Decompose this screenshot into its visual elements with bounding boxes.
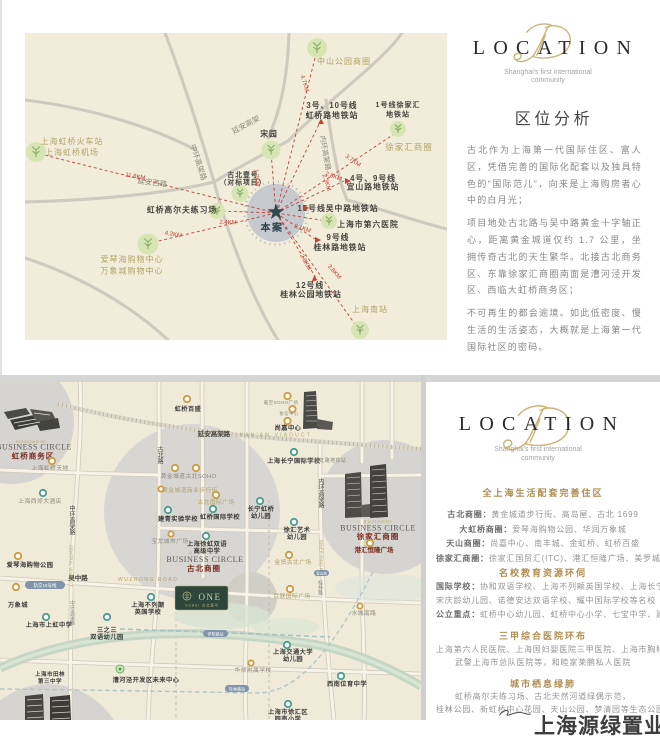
svg-text:CENTRAL VIADUCT: CENTRAL VIADUCT xyxy=(69,545,74,587)
svg-text:宋园: 宋园 xyxy=(259,129,278,139)
svg-text:ONE: ONE xyxy=(199,592,222,602)
svg-text:万象城购物中心: 万象城购物中心 xyxy=(101,266,164,276)
svg-text:INNER RING RD: INNER RING RD xyxy=(319,540,324,575)
svg-text:1号线徐家汇: 1号线徐家汇 xyxy=(376,100,421,109)
svg-text:双语幼儿园: 双语幼儿园 xyxy=(89,633,123,641)
svg-text:上海徐虹双语: 上海徐虹双语 xyxy=(187,540,227,548)
svg-text:幼儿园: 幼儿园 xyxy=(283,655,303,663)
svg-text:尚嘉中心: 尚嘉中心 xyxy=(275,424,302,432)
svg-text:上海市第六医院: 上海市第六医院 xyxy=(337,219,399,229)
svg-text:水城南路: 水城南路 xyxy=(352,609,377,617)
svg-text:本案: 本案 xyxy=(261,221,284,234)
svg-text:上海西郊大酒店: 上海西郊大酒店 xyxy=(18,497,61,505)
svg-text:黄金城道: 黄金城道 xyxy=(161,472,186,480)
svg-text:桂林路站: 桂林路站 xyxy=(229,686,245,692)
svg-text:宝龙城市广场: 宝龙城市广场 xyxy=(151,537,188,545)
svg-text:临空SOHO广场: 临空SOHO广场 xyxy=(264,399,299,406)
svg-text:WUZHONG ROAD: WUZHONG ROAD xyxy=(118,577,178,583)
svg-text:虹桥高尔夫练习场: 虹桥高尔夫练习场 xyxy=(147,205,217,215)
svg-text:中山公园商圈: 中山公园商圈 xyxy=(317,56,371,66)
svg-text:西南位育中学: 西南位育中学 xyxy=(327,680,367,688)
svg-text:虹桥国际学校: 虹桥国际学校 xyxy=(200,513,240,521)
svg-text:建青实验学校: 建青实验学校 xyxy=(157,515,198,523)
svg-text:古北SOHO: 古北SOHO xyxy=(185,472,216,480)
svg-text:9号线: 9号线 xyxy=(327,232,350,242)
svg-text:华师附属学校: 华师附属学校 xyxy=(234,666,271,674)
svg-text:上海虹桥机场: 上海虹桥机场 xyxy=(45,147,99,157)
svg-text:古北路: 古北路 xyxy=(156,445,163,465)
svg-text:万象城: 万象城 xyxy=(7,601,28,609)
svg-text:上海虹桥天地: 上海虹桥天地 xyxy=(31,464,68,472)
svg-text:三之三: 三之三 xyxy=(97,626,117,634)
svg-text:地铁站: 地铁站 xyxy=(386,110,410,119)
svg-text:英国学校: 英国学校 xyxy=(135,608,162,616)
svg-text:上海南站: 上海南站 xyxy=(352,304,388,314)
svg-text:内环高架路: 内环高架路 xyxy=(317,477,324,509)
svg-text:桂林路: 桂林路 xyxy=(317,579,323,596)
svg-text:GUBEI 古北壹号: GUBEI 古北壹号 xyxy=(185,603,219,608)
svg-text:上海市田林: 上海市田林 xyxy=(35,670,65,678)
svg-text:上海虹桥火车站: 上海虹桥火车站 xyxy=(41,136,104,146)
svg-text:伊犁路站: 伊犁路站 xyxy=(208,631,224,637)
svg-text:古北国际广场: 古北国际广场 xyxy=(197,498,234,506)
svg-text:桂林公园地铁站: 桂林公园地铁站 xyxy=(279,289,342,299)
svg-text:漕河泾开发区未来中心: 漕河泾开发区未来中心 xyxy=(112,676,180,684)
svg-text:4号、9号线: 4号、9号线 xyxy=(350,173,396,183)
svg-text:第三中学: 第三中学 xyxy=(38,677,62,685)
svg-text:12号线: 12号线 xyxy=(296,280,324,290)
svg-text:港汇恒隆广场: 港汇恒隆广场 xyxy=(355,545,395,554)
svg-text:长宁区淞虹路地铁站: 长宁区淞虹路地铁站 xyxy=(298,457,347,464)
svg-text:宜山路地铁站: 宜山路地铁站 xyxy=(347,182,400,192)
svg-text:虹桥商务区: 虹桥商务区 xyxy=(12,451,55,461)
svg-text:上海不列颠: 上海不列颠 xyxy=(131,601,165,609)
svg-text:上海市上虹中学: 上海市上虹中学 xyxy=(26,621,73,629)
svg-text:爱琴海购物中心: 爱琴海购物中心 xyxy=(101,254,164,264)
svg-text:百联国际广场: 百联国际广场 xyxy=(273,592,310,600)
svg-text:徐家汇商圈: 徐家汇商圈 xyxy=(385,142,433,152)
svg-text:协信中心: 协信中心 xyxy=(279,410,299,417)
svg-text:宜山站: 宜山站 xyxy=(316,571,327,576)
svg-text:YAN'AN VIADUCT: YAN'AN VIADUCT xyxy=(240,433,312,439)
svg-text:延安高架路: 延安高架路 xyxy=(197,429,231,438)
svg-text:徐家汇商圈: 徐家汇商圈 xyxy=(356,531,400,541)
svg-text:幼儿园: 幼儿园 xyxy=(287,533,307,541)
svg-text:轨交15号线: 轨交15号线 xyxy=(33,582,57,589)
svg-text:桂林路地铁站: 桂林路地铁站 xyxy=(313,242,367,252)
svg-text:上海交通大学: 上海交通大学 xyxy=(273,648,313,656)
svg-text:古北商圈: 古北商圈 xyxy=(187,563,221,573)
svg-text:长宁虹桥: 长宁虹桥 xyxy=(248,505,275,513)
svg-text:中环高架路: 中环高架路 xyxy=(68,504,75,536)
svg-text:上海市徐汇区: 上海市徐汇区 xyxy=(268,708,308,716)
svg-text:园南小学: 园南小学 xyxy=(275,715,302,720)
svg-text:3号、10号线: 3号、10号线 xyxy=(306,100,357,110)
svg-text:幼儿园: 幼儿园 xyxy=(251,512,271,520)
svg-text:金贸古北广场: 金贸古北广场 xyxy=(274,558,311,566)
svg-text:虹桥百盛: 虹桥百盛 xyxy=(175,405,202,413)
svg-text:BUSINESS CIRCLE: BUSINESS CIRCLE xyxy=(0,443,72,452)
svg-text:黄金城道商业步行街: 黄金城道商业步行街 xyxy=(162,486,218,494)
svg-text:BUSINESS CIRCLE: BUSINESS CIRCLE xyxy=(166,555,243,564)
svg-text:15号线吴中路地铁站: 15号线吴中路地铁站 xyxy=(297,203,378,213)
svg-text:徐汇艺术: 徐汇艺术 xyxy=(283,526,311,534)
svg-text:爱琴海购物公园: 爱琴海购物公园 xyxy=(7,561,54,569)
svg-text:2.4KM: 2.4KM xyxy=(219,220,237,227)
svg-text:高级中学: 高级中学 xyxy=(194,547,221,555)
svg-text:虹桥路地铁站: 虹桥路地铁站 xyxy=(306,110,359,120)
